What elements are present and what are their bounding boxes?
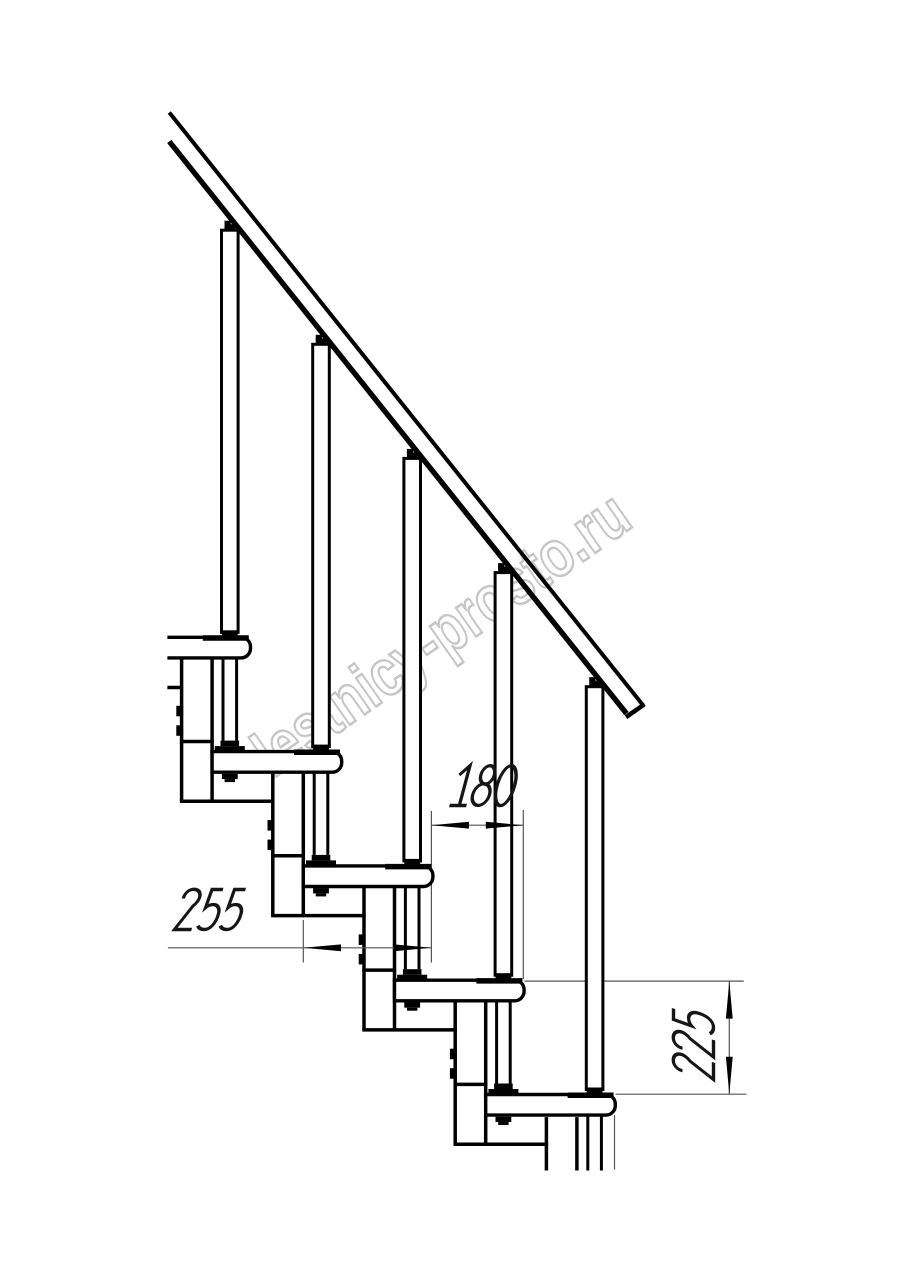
- svg-text:lestnicy-prosto.ru: lestnicy-prosto.ru: [239, 476, 644, 790]
